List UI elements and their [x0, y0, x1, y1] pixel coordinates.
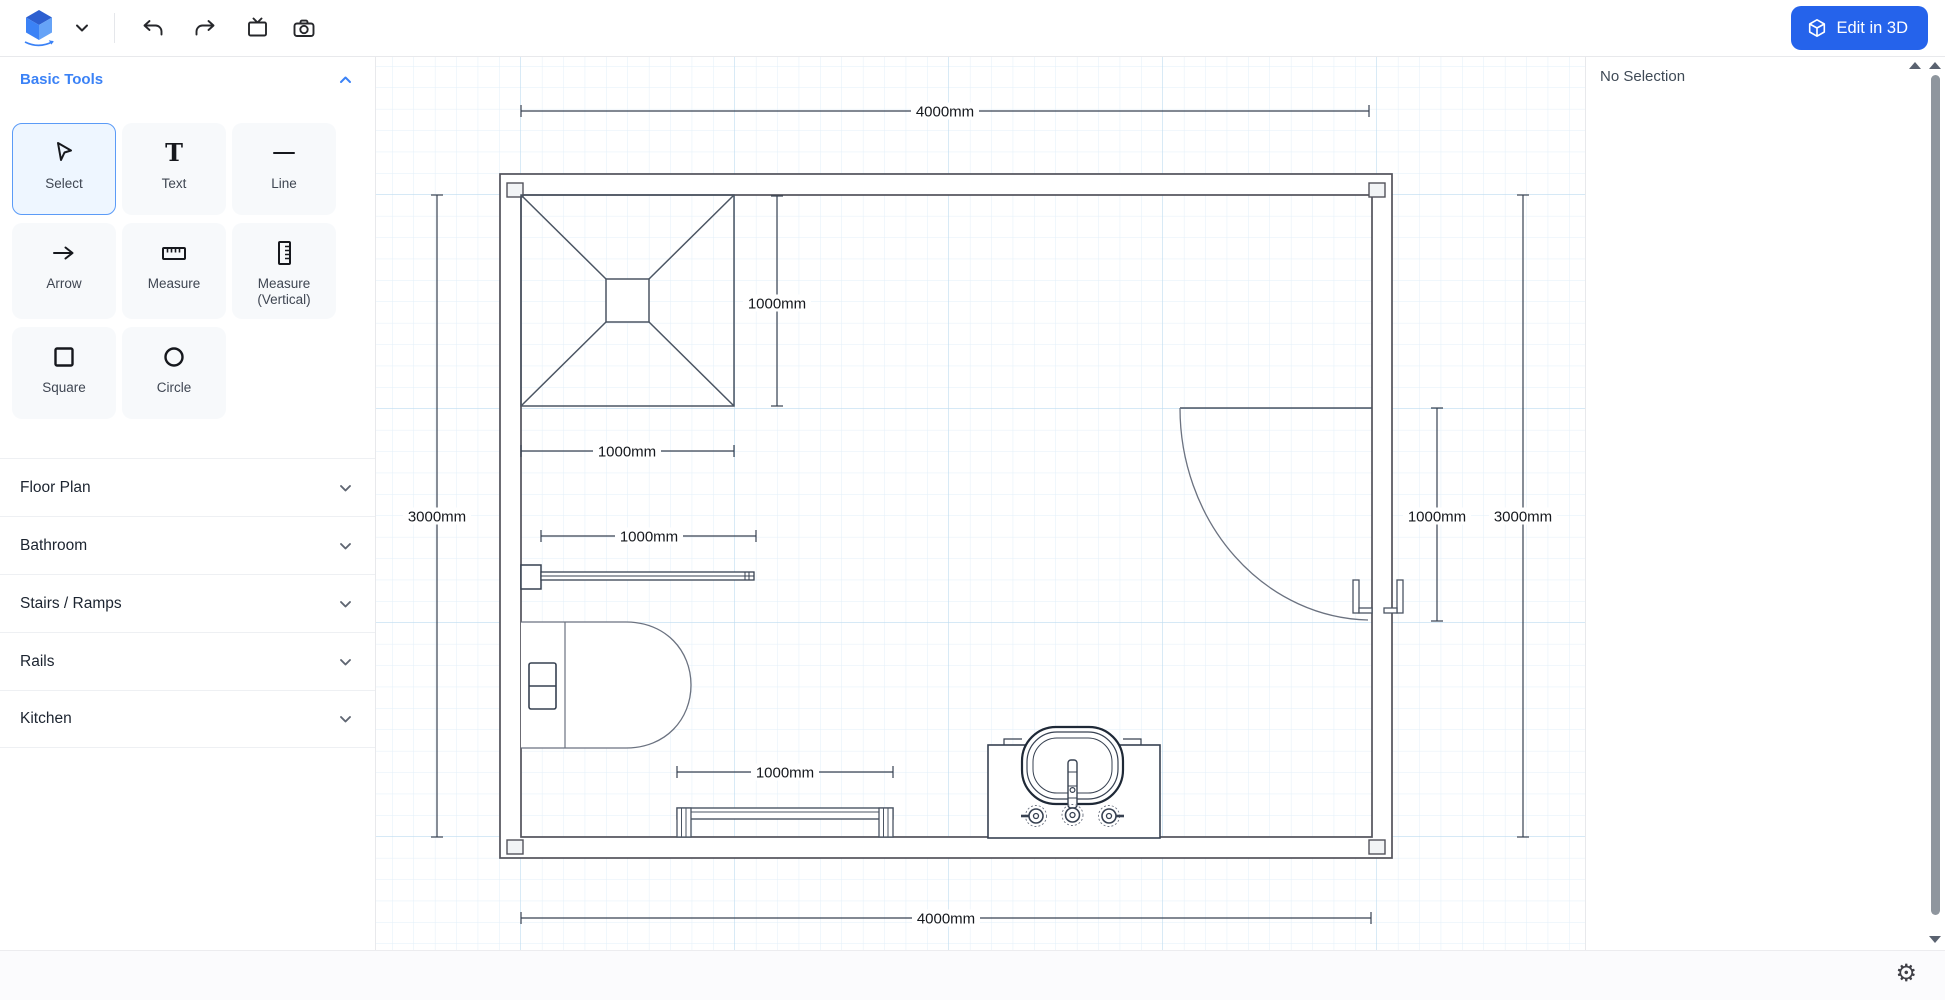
dim-label-door: 1000mm	[1408, 509, 1466, 526]
line-icon	[270, 139, 298, 167]
chevron-down-icon	[338, 597, 353, 611]
toolbar-divider	[114, 13, 115, 43]
tool-arrow[interactable]: Arrow	[12, 223, 116, 319]
panel-scroll-up-arrow[interactable]	[1909, 62, 1921, 69]
chevron-down-icon	[338, 481, 353, 495]
tool-measure[interactable]: Measure	[122, 223, 226, 319]
section-kitchen[interactable]: Kitchen	[0, 690, 375, 748]
tool-label: Measure	[148, 276, 201, 292]
camera-icon	[292, 16, 316, 40]
basic-tools-header[interactable]: Basic Tools	[20, 71, 353, 88]
dim-label-right: 3000mm	[1494, 509, 1552, 526]
square-icon	[50, 343, 78, 371]
no-selection-label: No Selection	[1586, 57, 1945, 85]
dim-label-top: 4000mm	[916, 104, 974, 121]
section-stairs-ramps[interactable]: Stairs / Ramps	[0, 574, 375, 632]
app-logo[interactable]	[18, 6, 60, 50]
cursor-icon	[50, 139, 78, 167]
basic-tools-title: Basic Tools	[20, 71, 103, 88]
dim-label-rail: 1000mm	[620, 529, 678, 546]
section-label: Kitchen	[20, 710, 72, 728]
text-icon: T	[160, 139, 188, 167]
tool-circle[interactable]: Circle	[122, 327, 226, 419]
wall-joint-bottom-right	[1369, 840, 1385, 854]
tool-measure-vertical[interactable]: Measure (Vertical)	[232, 223, 336, 319]
section-label: Rails	[20, 653, 54, 671]
library-sections: Floor Plan Bathroom Stairs / Ramps Rails…	[0, 458, 375, 748]
undo-icon	[141, 16, 165, 40]
undo-button[interactable]	[141, 16, 165, 40]
wall-joint-bottom-left	[507, 840, 523, 854]
section-bathroom[interactable]: Bathroom	[0, 516, 375, 574]
app-logo-cube-icon	[18, 6, 60, 50]
top-toolbar: Edit in 3D	[0, 0, 1945, 57]
tool-label: Circle	[157, 380, 192, 396]
page-scroll-up-arrow[interactable]	[1929, 62, 1941, 69]
toilet[interactable]	[521, 622, 691, 748]
chevron-down-icon	[74, 20, 90, 36]
tool-line[interactable]: Line	[232, 123, 336, 215]
inspector-panel: No Selection	[1585, 57, 1945, 950]
chevron-down-icon	[338, 655, 353, 669]
dim-label-shower-height: 1000mm	[748, 296, 806, 313]
tool-label: Select	[45, 176, 83, 192]
app-menu-chevron[interactable]	[74, 20, 90, 36]
tool-label: Square	[42, 380, 86, 396]
floorplan-canvas[interactable]: 4000mm 4000mm 3000mm 3000mm 1000mm 1000m…	[376, 57, 1585, 950]
tool-label: Measure (Vertical)	[237, 276, 331, 308]
section-label: Stairs / Ramps	[20, 595, 122, 613]
tool-label: Arrow	[46, 276, 81, 292]
tool-label: Text	[162, 176, 187, 192]
section-label: Floor Plan	[20, 479, 91, 497]
page-scroll-down-arrow[interactable]	[1929, 936, 1941, 943]
dim-label-left: 3000mm	[408, 509, 466, 526]
tool-label: Line	[271, 176, 297, 192]
redo-button[interactable]	[193, 16, 217, 40]
edit-in-3d-button[interactable]: Edit in 3D	[1791, 6, 1928, 50]
sink-faucet	[1068, 760, 1077, 808]
display-button[interactable]	[245, 16, 270, 40]
edit-in-3d-label: Edit in 3D	[1836, 19, 1908, 38]
chevron-down-icon	[338, 539, 353, 553]
chevron-down-icon	[338, 712, 353, 726]
screenshot-button[interactable]	[292, 16, 316, 40]
wall-joint-top-right	[1369, 183, 1385, 197]
tool-square[interactable]: Square	[12, 327, 116, 419]
tools-sidebar: Basic Tools Select T Text Line	[0, 57, 376, 950]
floorplan-drawing: 4000mm 4000mm 3000mm 3000mm 1000mm 1000m…	[376, 57, 1585, 950]
svg-text:T: T	[165, 139, 183, 167]
status-bar: ⚙	[0, 950, 1945, 1000]
arrow-right-icon	[50, 239, 78, 267]
ruler-vertical-icon	[270, 239, 298, 267]
tool-text[interactable]: T Text	[122, 123, 226, 215]
page-scrollbar-thumb[interactable]	[1931, 75, 1940, 915]
basic-tools-grid: Select T Text Line Arrow Measure	[12, 123, 342, 419]
settings-gear-icon[interactable]: ⚙	[1895, 961, 1917, 985]
circle-icon	[160, 343, 188, 371]
chevron-up-icon	[338, 73, 353, 87]
display-icon	[245, 16, 270, 40]
cube-outline-icon	[1807, 18, 1827, 38]
dim-label-bottom: 4000mm	[917, 911, 975, 928]
section-label: Bathroom	[20, 537, 87, 555]
section-rails[interactable]: Rails	[0, 632, 375, 690]
redo-icon	[193, 16, 217, 40]
ruler-horizontal-icon	[160, 239, 188, 267]
dim-label-bench: 1000mm	[756, 765, 814, 782]
tool-select[interactable]: Select	[12, 123, 116, 215]
section-floor-plan[interactable]: Floor Plan	[0, 458, 375, 516]
dim-label-shower-width: 1000mm	[598, 444, 656, 461]
